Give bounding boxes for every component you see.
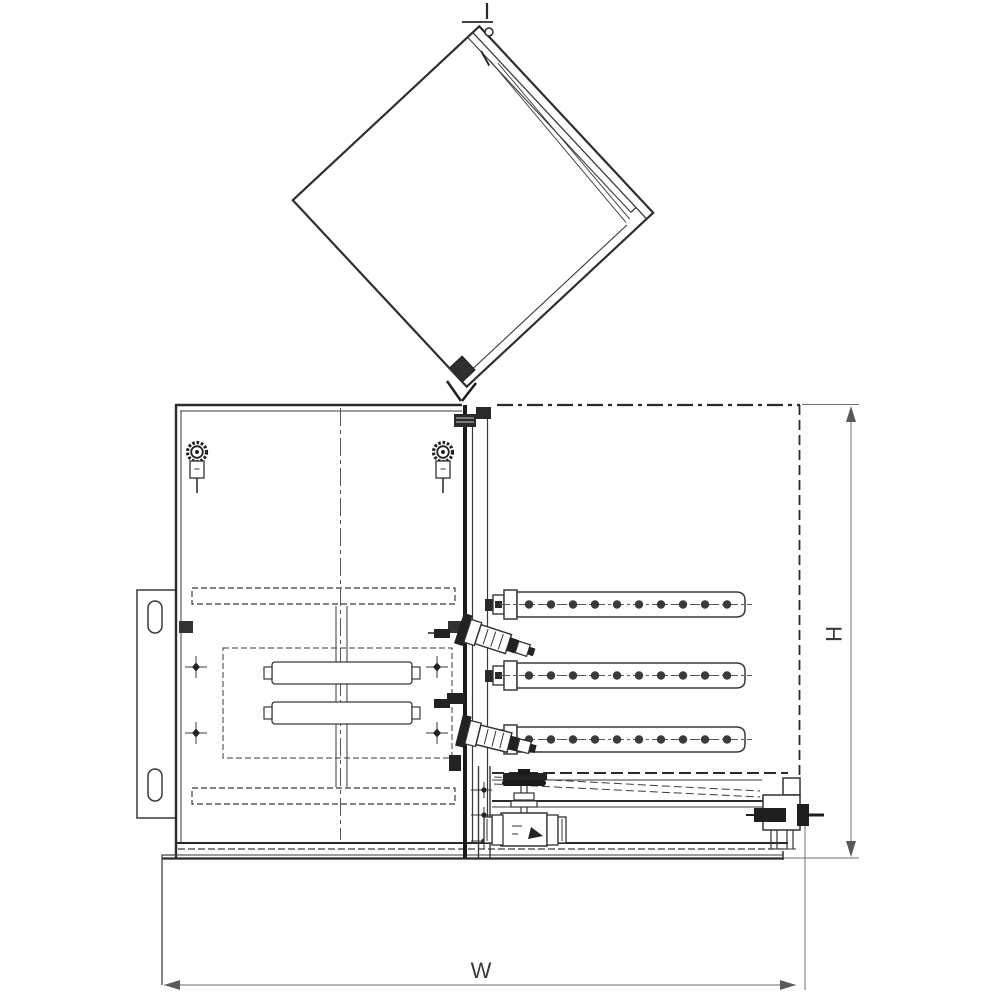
drain-fitting xyxy=(746,778,824,849)
left-door-panel xyxy=(179,408,462,840)
louver-slot-1 xyxy=(264,662,420,684)
technical-drawing: H W xyxy=(0,0,1000,1000)
fastener-mark xyxy=(185,722,207,744)
drawing-canvas: H W xyxy=(0,0,1000,1000)
wall-mount-bracket xyxy=(137,590,175,818)
valve-body xyxy=(501,813,547,846)
spray-bar-2 xyxy=(485,661,752,690)
fastener-mark xyxy=(185,656,207,678)
lid-pivot-pin xyxy=(485,28,493,36)
side-clip-left xyxy=(179,621,193,633)
width-label: W xyxy=(471,958,492,983)
front-channel xyxy=(471,766,492,858)
louver-slot-2 xyxy=(264,702,420,724)
height-label: H xyxy=(821,626,846,642)
toggle-clamp-right xyxy=(434,443,453,494)
toggle-clamp-left xyxy=(188,443,207,494)
hidden-stiffener-top xyxy=(192,588,455,604)
base-pedestal xyxy=(162,855,177,985)
fastener-mark xyxy=(426,656,448,678)
hidden-stiffener-bottom xyxy=(192,788,455,804)
valve-handle xyxy=(502,780,546,786)
spray-bar-1 xyxy=(485,590,752,619)
fastener-mark xyxy=(426,722,448,744)
lid-hinge xyxy=(447,381,476,401)
open-lid xyxy=(293,3,653,387)
